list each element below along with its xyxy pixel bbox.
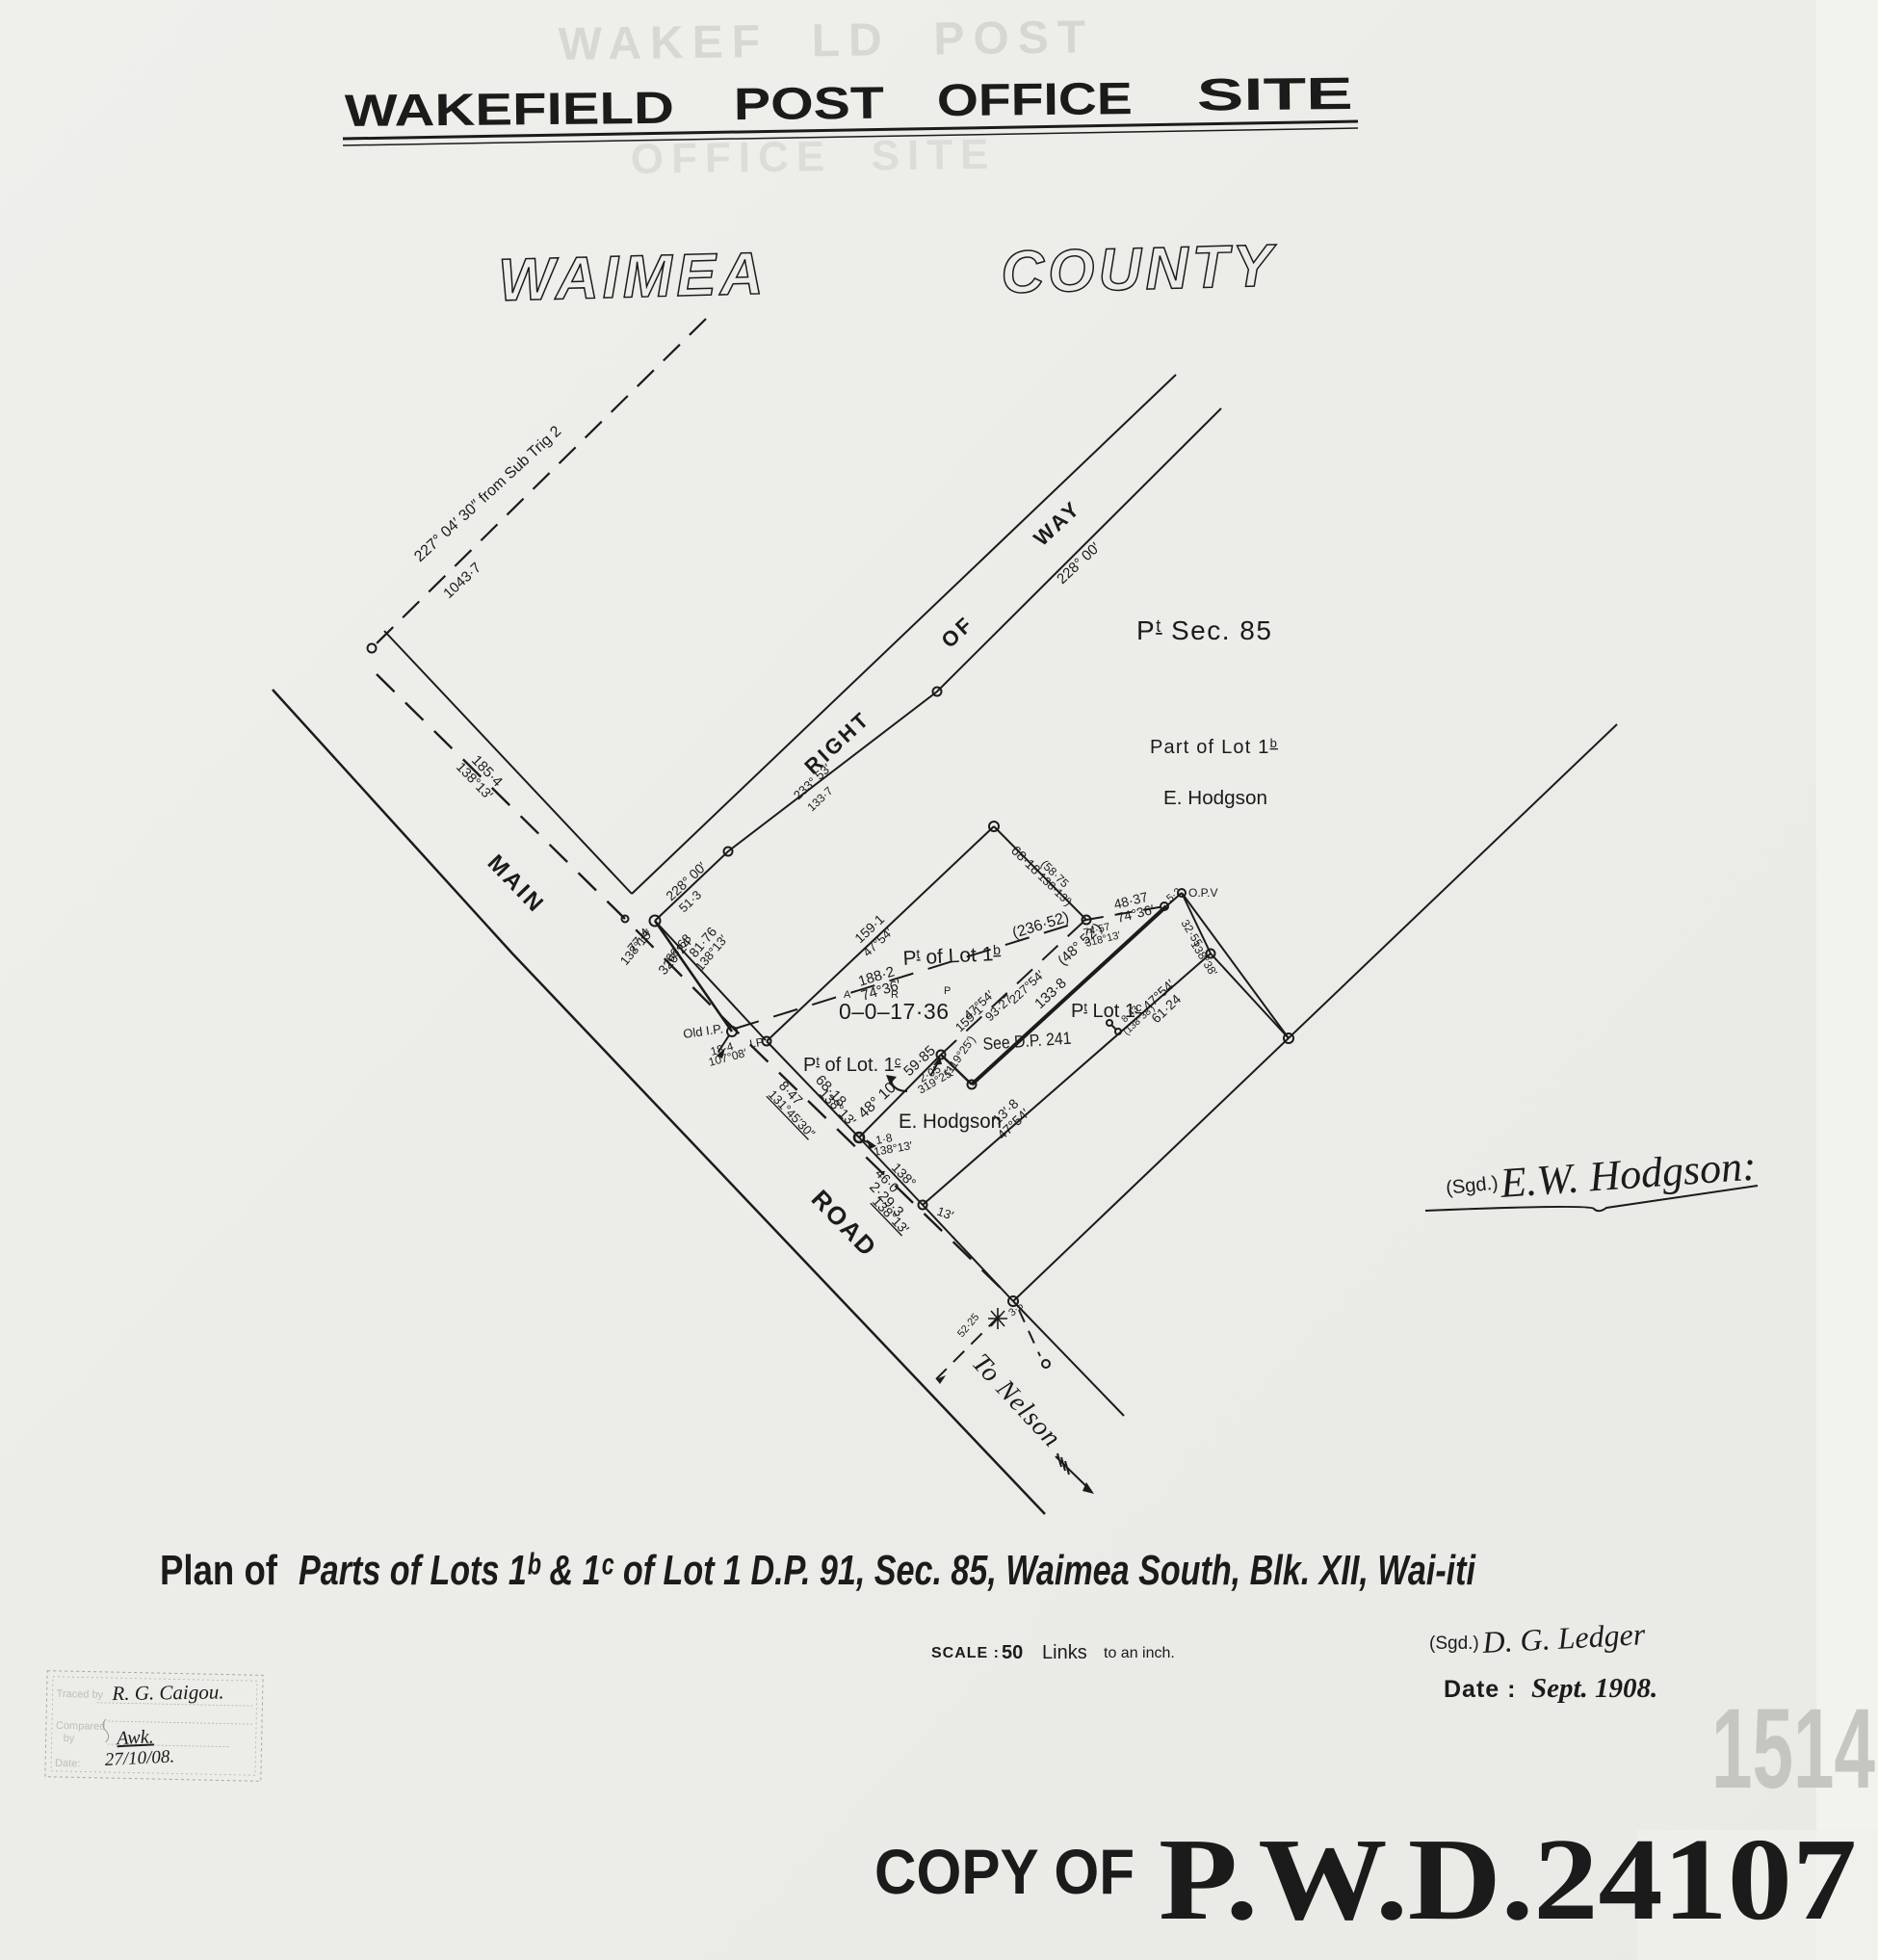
svg-text:0–0–17·36: 0–0–17·36 bbox=[839, 999, 950, 1024]
svg-text:OFFICE: OFFICE bbox=[937, 72, 1133, 125]
svg-text:Sept. 1908.: Sept. 1908. bbox=[1531, 1673, 1657, 1704]
svg-text:(Sgd.): (Sgd.) bbox=[1429, 1633, 1479, 1654]
svg-text:Links: Links bbox=[1042, 1642, 1087, 1663]
svg-text:O.P.V: O.P.V bbox=[1188, 886, 1217, 900]
svg-text:E. Hodgson: E. Hodgson bbox=[899, 1111, 1002, 1133]
svg-text:SITE: SITE bbox=[1197, 67, 1354, 120]
svg-text:to an inch.: to an inch. bbox=[1104, 1645, 1175, 1661]
svg-text:OFFICE SITE: OFFICE SITE bbox=[630, 131, 996, 183]
svg-text:Part of Lot 1b: Part of Lot 1b bbox=[1150, 736, 1278, 758]
svg-text:COPY OF: COPY OF bbox=[874, 1836, 1135, 1907]
svg-text:E. Hodgson: E. Hodgson bbox=[1163, 788, 1267, 809]
svg-text:WAKEFIELD: WAKEFIELD bbox=[345, 82, 674, 136]
svg-text:1514: 1514 bbox=[1711, 1686, 1875, 1813]
svg-text:P: P bbox=[944, 985, 951, 997]
svg-text:Date :: Date : bbox=[1444, 1676, 1516, 1703]
svg-text:Date:: Date: bbox=[55, 1758, 81, 1770]
svg-text:Traced by: Traced by bbox=[57, 1688, 104, 1701]
svg-text:WAIMEA: WAIMEA bbox=[498, 241, 769, 314]
svg-text:P.W.D.24107: P.W.D.24107 bbox=[1159, 1815, 1857, 1945]
svg-text:Plan of: Plan of bbox=[160, 1547, 277, 1594]
svg-text:Awk.: Awk. bbox=[115, 1726, 154, 1749]
svg-text:by: by bbox=[64, 1733, 75, 1744]
svg-text:Compared: Compared bbox=[56, 1720, 106, 1733]
svg-text:27/10/08.: 27/10/08. bbox=[104, 1746, 174, 1770]
svg-text:SCALE :: SCALE : bbox=[931, 1645, 1000, 1661]
svg-text:I.P: I.P bbox=[748, 1035, 765, 1051]
svg-text:Parts of Lots 1ᵇ & 1ᶜ of Lot 1: Parts of Lots 1ᵇ & 1ᶜ of Lot 1 D.P. 91, … bbox=[299, 1547, 1476, 1594]
svg-text:POST: POST bbox=[734, 77, 885, 129]
svg-text:COUNTY: COUNTY bbox=[1001, 232, 1279, 306]
svg-text:WAKEF LD POST: WAKEF LD POST bbox=[558, 12, 1094, 70]
svg-text:R. G. Caigou.: R. G. Caigou. bbox=[111, 1680, 223, 1705]
svg-text:50: 50 bbox=[1002, 1642, 1023, 1663]
